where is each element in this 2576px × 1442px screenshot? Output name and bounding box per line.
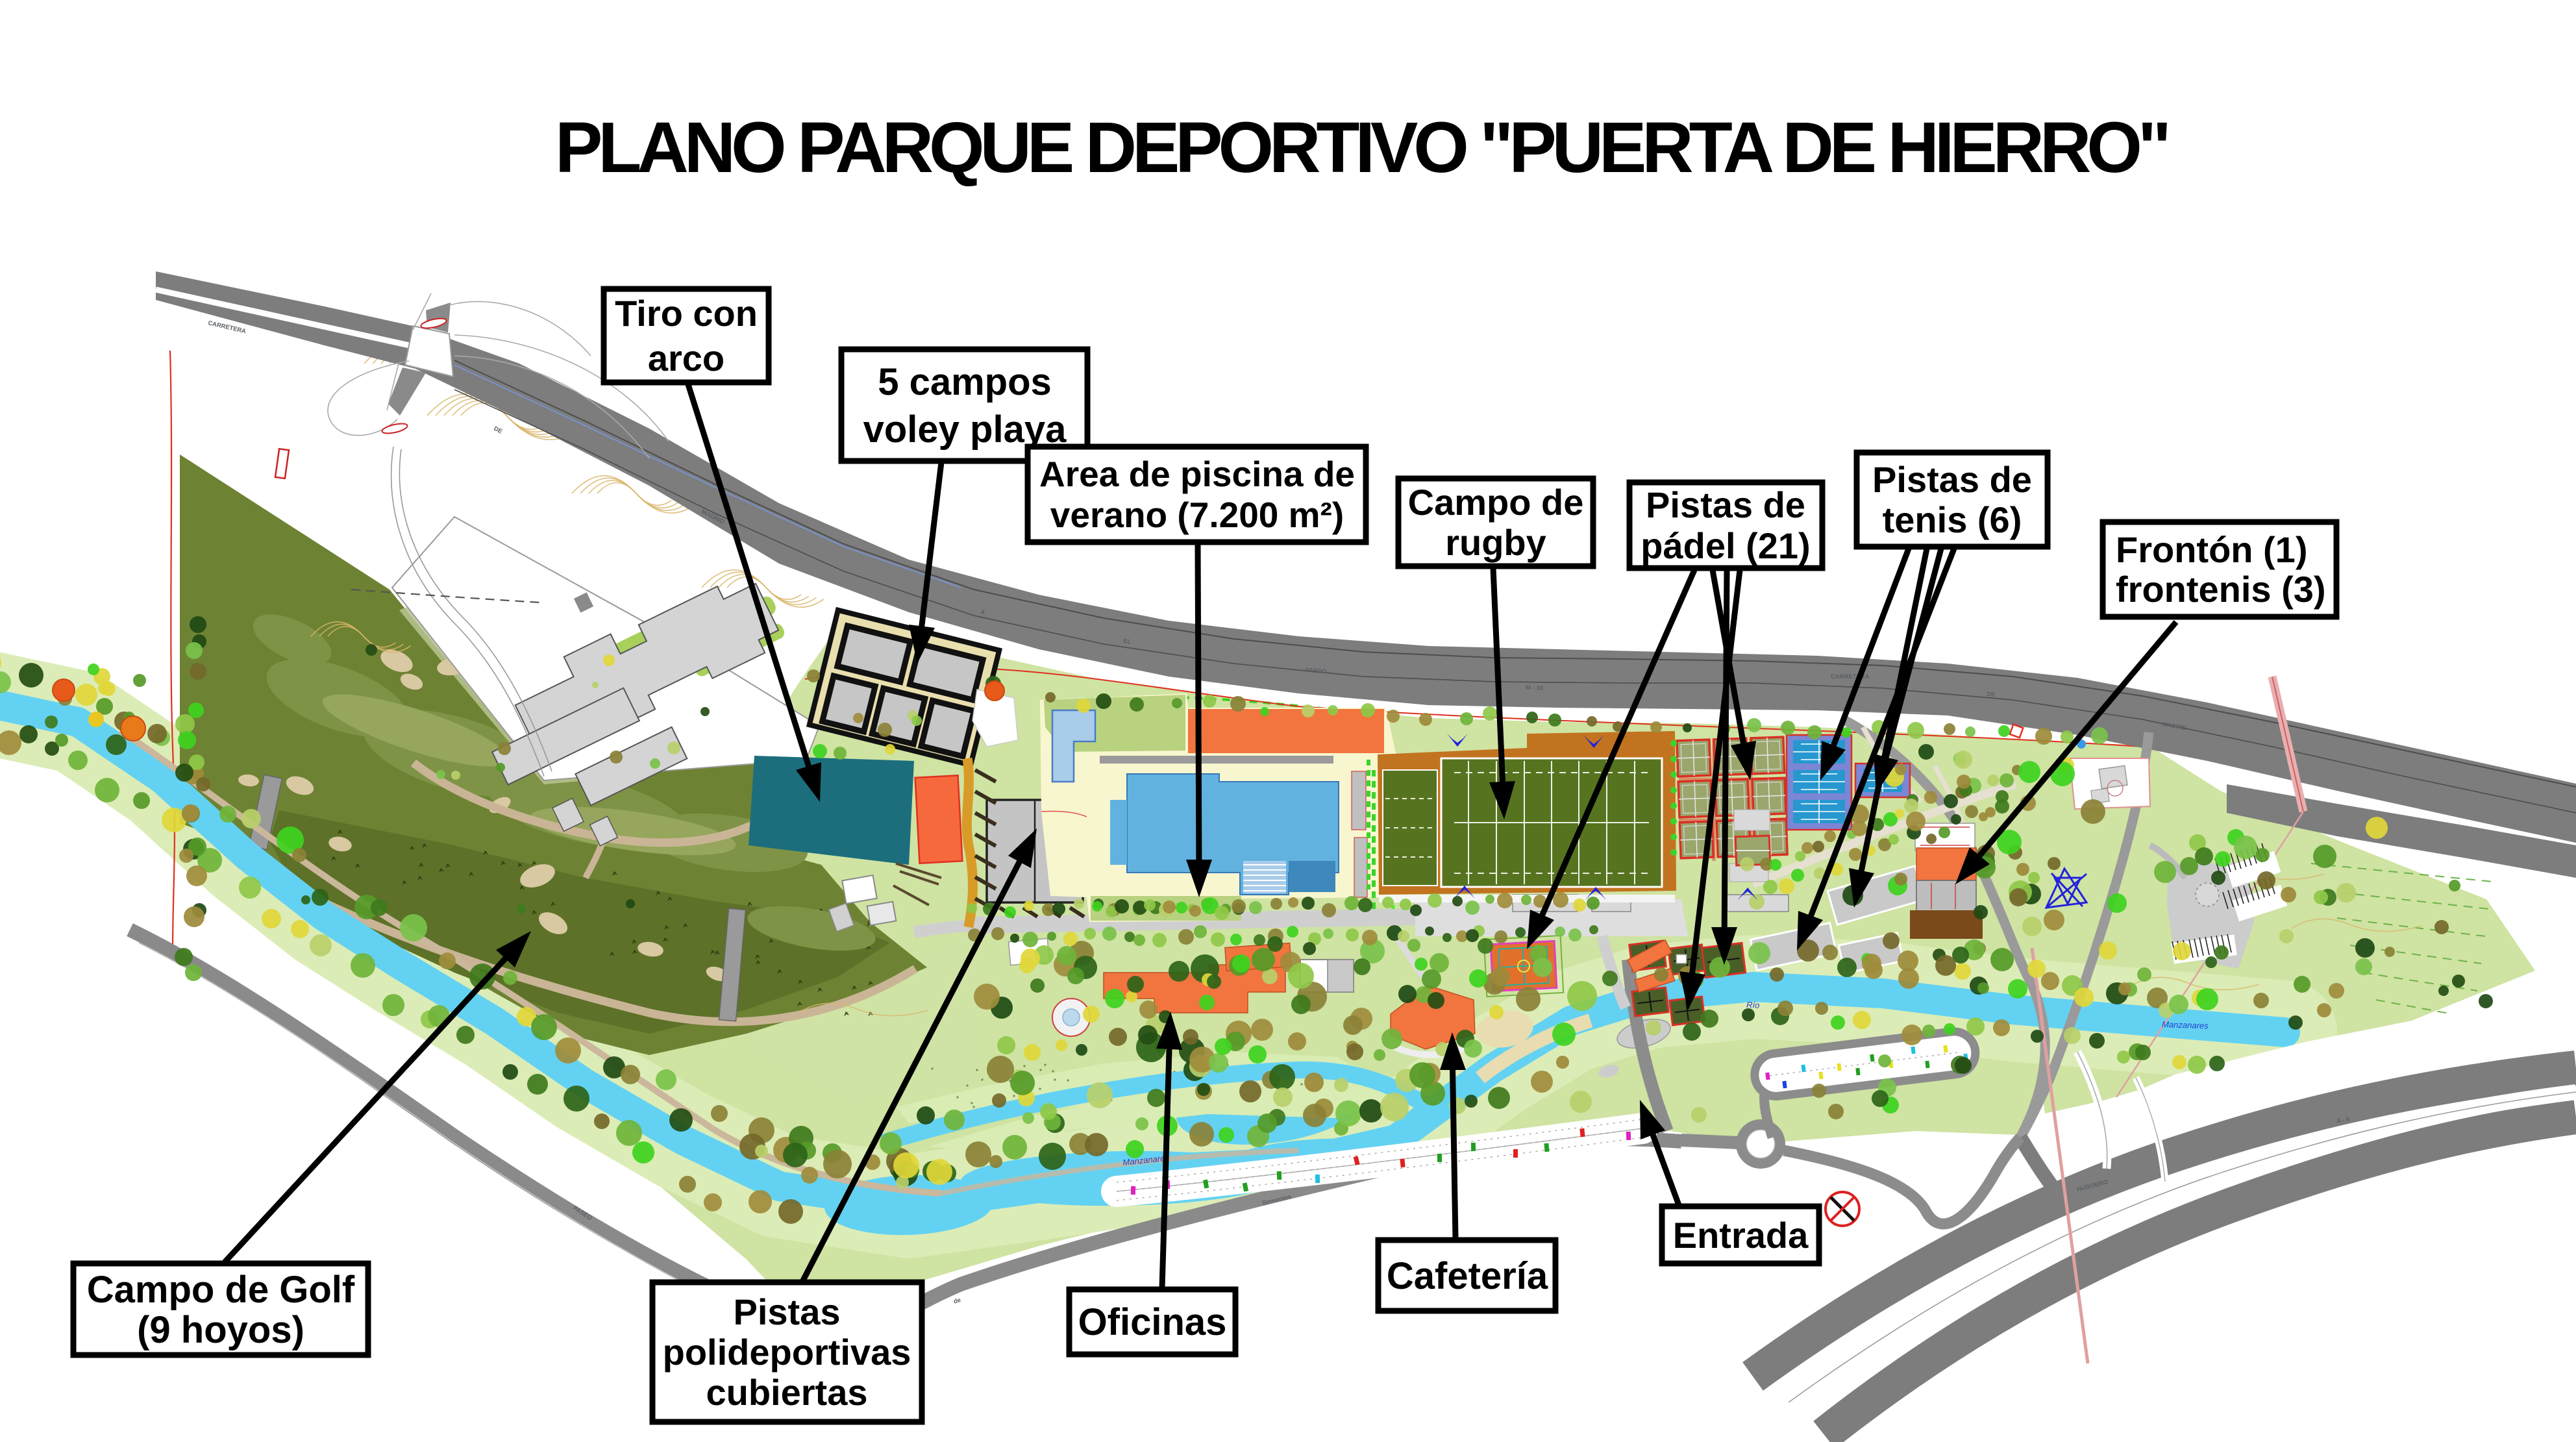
svg-text:Pistas de: Pistas de xyxy=(1872,459,2032,500)
svg-text:DE: DE xyxy=(1987,691,1996,699)
svg-text:Campo de: Campo de xyxy=(1408,482,1584,523)
svg-text:Pistas de: Pistas de xyxy=(1646,484,1805,525)
svg-text:Campo de Golf: Campo de Golf xyxy=(87,1269,355,1311)
svg-text:5 campos: 5 campos xyxy=(878,361,1052,403)
svg-text:Entrada: Entrada xyxy=(1673,1215,1809,1256)
svg-text:PARDO: PARDO xyxy=(1305,667,1327,675)
svg-text:Oficinas: Oficinas xyxy=(1078,1301,1227,1343)
svg-text:arco: arco xyxy=(648,338,724,379)
svg-text:Pistas: Pistas xyxy=(734,1291,841,1332)
svg-text:Tiro con: Tiro con xyxy=(615,293,758,334)
svg-text:Río: Río xyxy=(1746,1000,1760,1010)
svg-text:Area de piscina de: Area de piscina de xyxy=(1039,454,1355,494)
svg-text:pádel (21): pádel (21) xyxy=(1641,525,1810,566)
svg-text:polideportivas: polideportivas xyxy=(663,1332,911,1373)
svg-text:cubiertas: cubiertas xyxy=(706,1372,868,1413)
svg-text:(9 hoyos): (9 hoyos) xyxy=(137,1309,304,1351)
svg-text:M - 30: M - 30 xyxy=(1526,684,1543,692)
svg-text:frontenis (3): frontenis (3) xyxy=(2116,569,2326,610)
svg-text:Manzanares: Manzanares xyxy=(2162,1019,2209,1031)
svg-text:EL: EL xyxy=(1123,638,1132,646)
svg-text:tenis (6): tenis (6) xyxy=(1883,499,2022,540)
svg-text:verano (7.200 m²): verano (7.200 m²) xyxy=(1050,495,1344,535)
svg-text:Cafetería: Cafetería xyxy=(1387,1255,1548,1297)
svg-text:Frontón (1): Frontón (1) xyxy=(2116,529,2307,570)
svg-text:PLANO PARQUE DEPORTIVO "PUERTA: PLANO PARQUE DEPORTIVO "PUERTA DE HIERRO… xyxy=(555,108,2172,188)
svg-text:rugby: rugby xyxy=(1445,522,1546,563)
